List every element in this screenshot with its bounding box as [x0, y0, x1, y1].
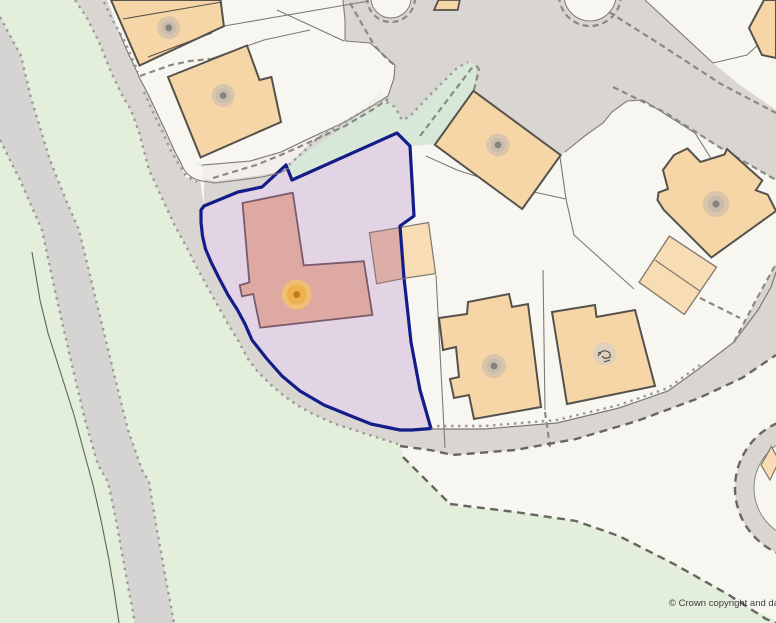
svg-text:© Crown copyright and database: © Crown copyright and database rights 20…: [669, 598, 776, 609]
